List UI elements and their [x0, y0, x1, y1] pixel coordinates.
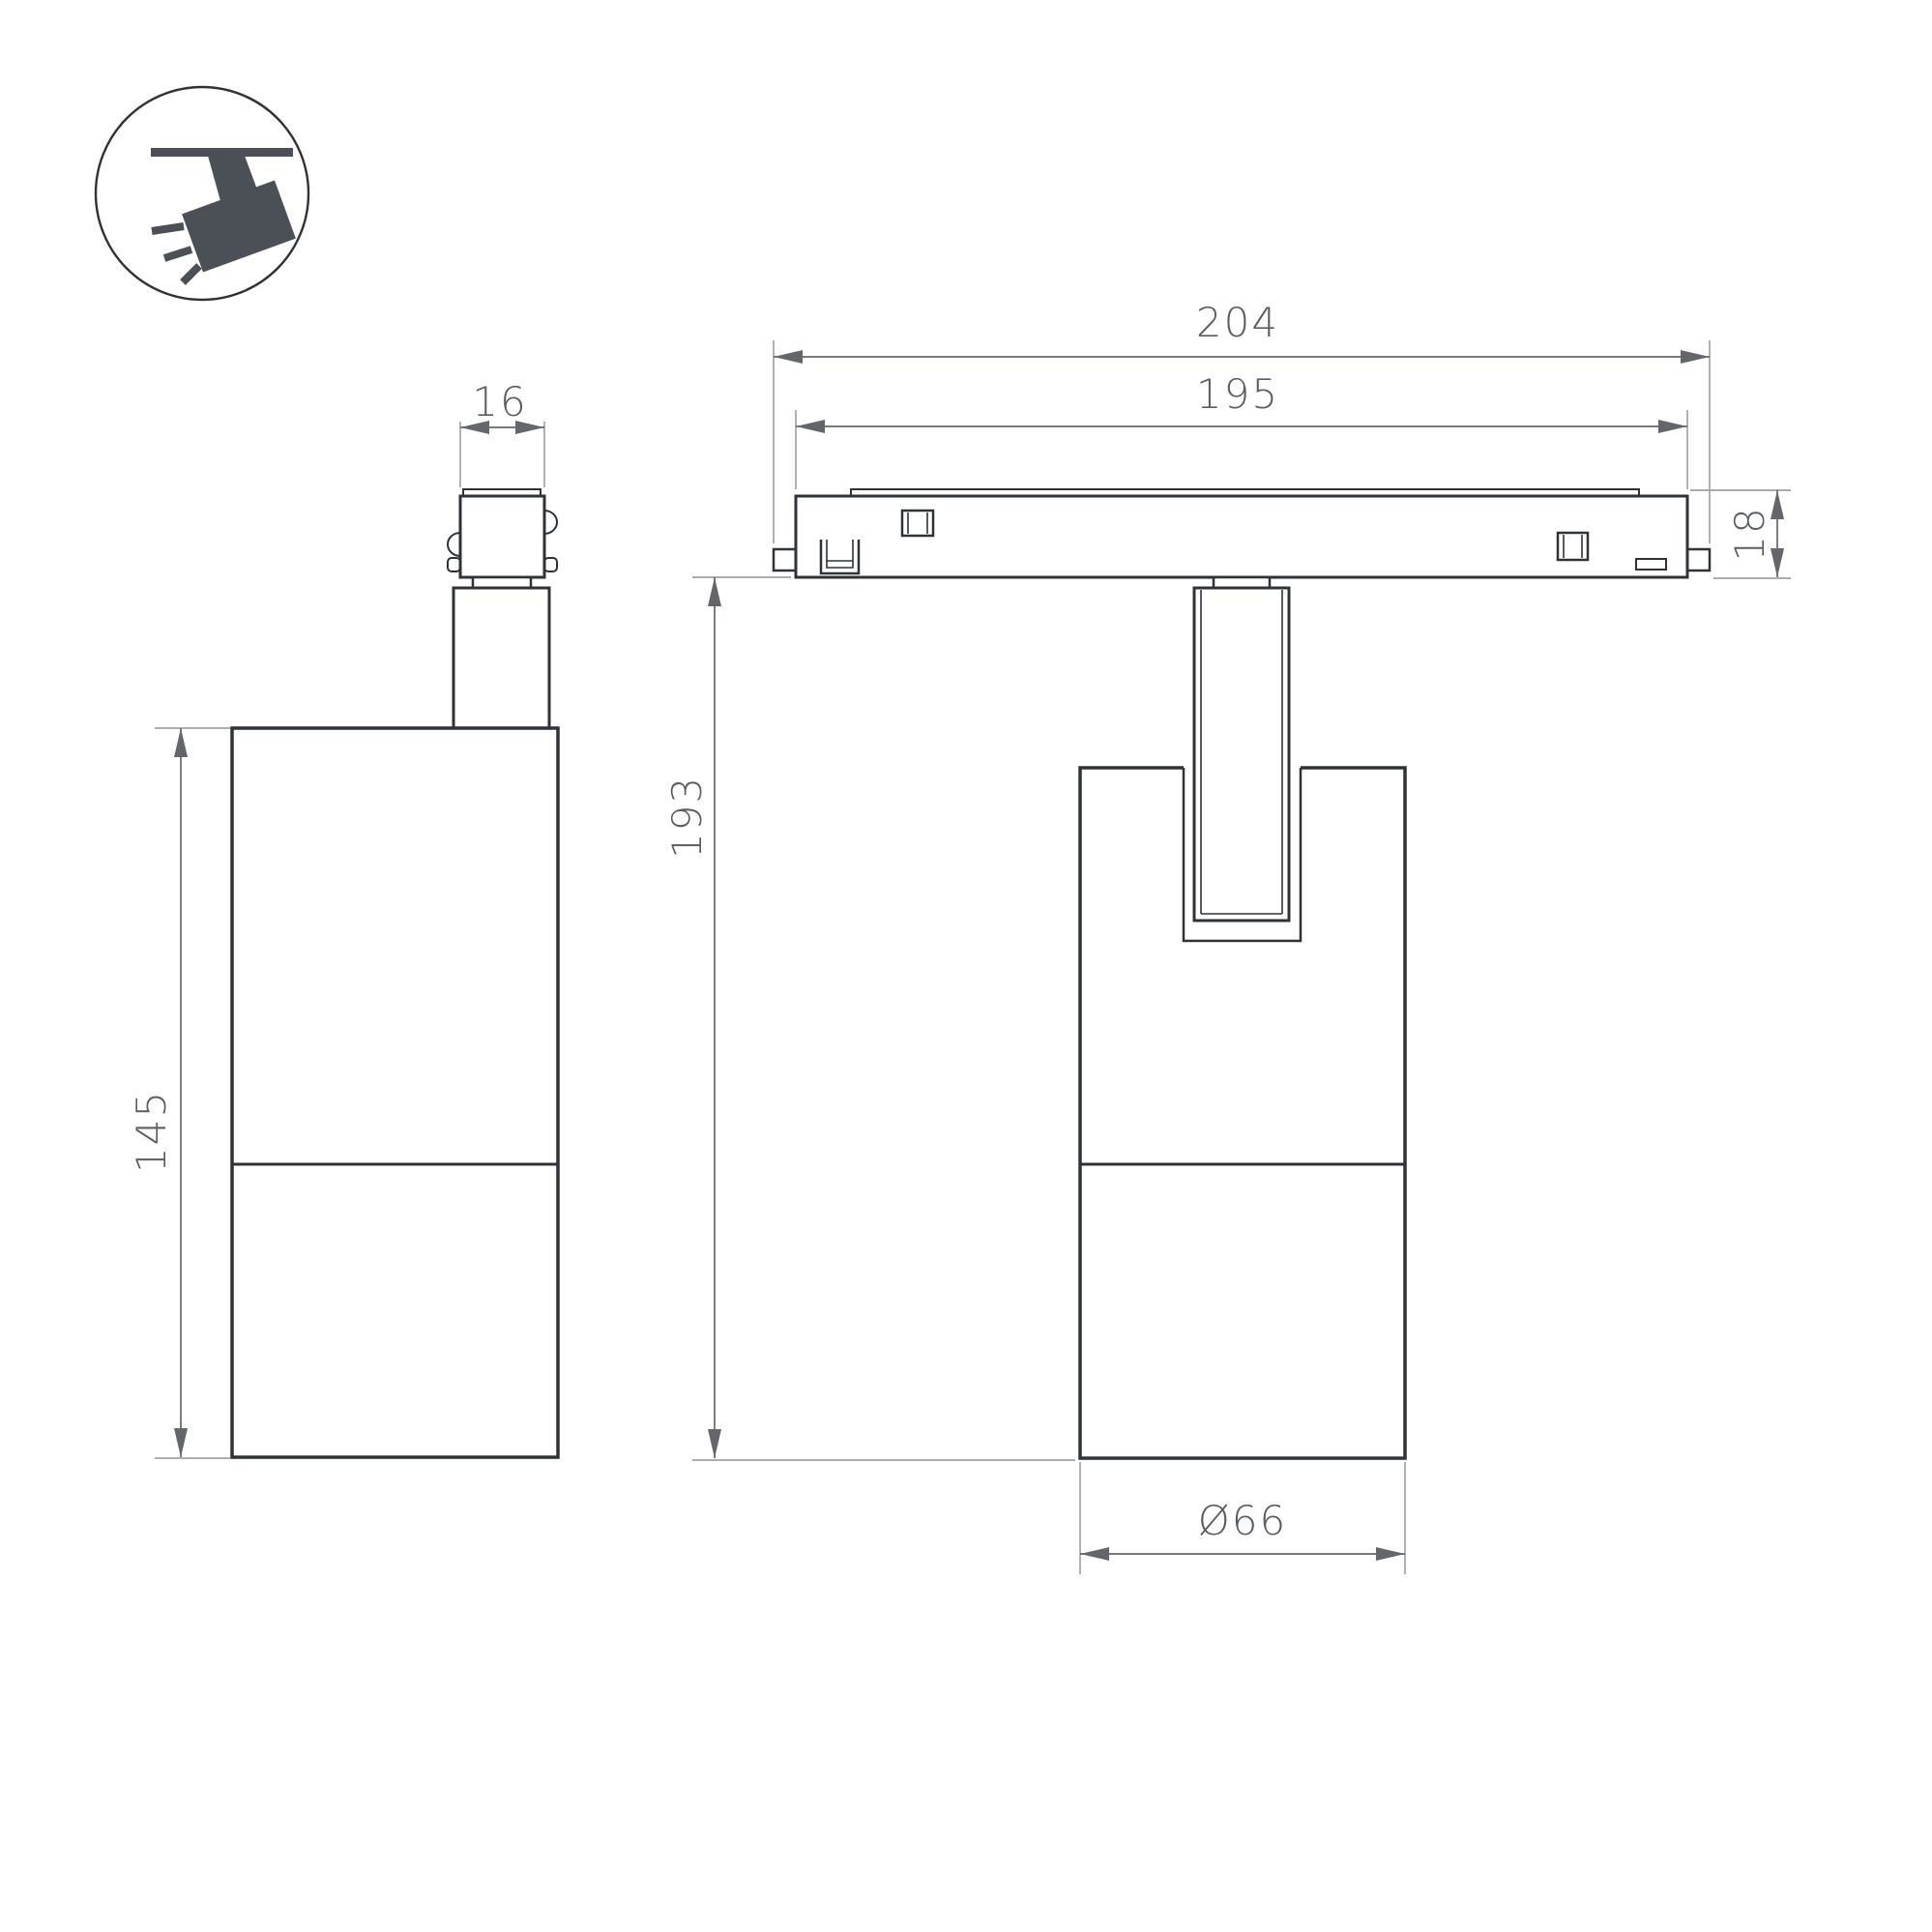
arrow-left-icon	[774, 350, 803, 364]
track-spotlight-icon	[96, 87, 308, 300]
dim-label-16: 16	[472, 378, 527, 425]
side-lamp-body	[232, 728, 558, 1457]
adapter-body	[460, 496, 544, 577]
arrow-left-icon	[1080, 1547, 1109, 1561]
side-track-adapter	[448, 489, 557, 588]
adapter-left-bump	[448, 533, 460, 556]
arrow-left-icon	[796, 420, 825, 433]
dim-label-18: 18	[1726, 506, 1773, 561]
side-view: 16 145	[128, 378, 558, 1458]
arrow-right-icon	[1658, 420, 1687, 433]
front-view: 204 195	[663, 299, 1791, 1574]
track-left-end-tab	[774, 549, 796, 571]
dim-track-body-length: 195	[796, 370, 1687, 489]
arrow-right-icon	[1376, 1547, 1405, 1561]
dim-body-diameter: Ø66	[1080, 1462, 1405, 1574]
track-module	[774, 489, 1710, 577]
dim-label-193: 193	[663, 776, 711, 859]
adapter-neck	[473, 577, 531, 588]
drawing-svg: 16 145	[0, 0, 1932, 1932]
arrow-down-icon	[174, 1428, 188, 1457]
side-arm	[454, 588, 549, 728]
technical-drawing-page: 16 145	[0, 0, 1932, 1932]
adapter-left-tab	[448, 558, 460, 571]
dim-body-height: 145	[128, 728, 230, 1458]
dim-label-195: 195	[1196, 370, 1279, 418]
side-body-outline	[232, 728, 558, 1457]
arm-top-stub	[1214, 577, 1270, 588]
adapter-right-tab	[544, 558, 557, 571]
adapter-right-bump	[544, 511, 557, 534]
icon-light-ray	[152, 226, 184, 231]
arrow-right-icon	[1681, 350, 1710, 364]
dim-label-d66: Ø66	[1198, 1497, 1288, 1544]
arrow-up-icon	[708, 577, 721, 606]
track-right-end-tab	[1687, 549, 1710, 571]
dim-adapter-width: 16	[460, 378, 544, 487]
dim-overall-height: 193	[663, 577, 1075, 1460]
front-arm	[1194, 577, 1289, 921]
icon-ceiling-bar	[151, 148, 293, 157]
arrow-down-icon	[708, 1429, 721, 1458]
dim-label-204: 204	[1196, 299, 1279, 346]
dim-label-145: 145	[128, 1090, 175, 1173]
arrow-up-icon	[174, 728, 188, 757]
arm-outline	[1194, 588, 1289, 921]
